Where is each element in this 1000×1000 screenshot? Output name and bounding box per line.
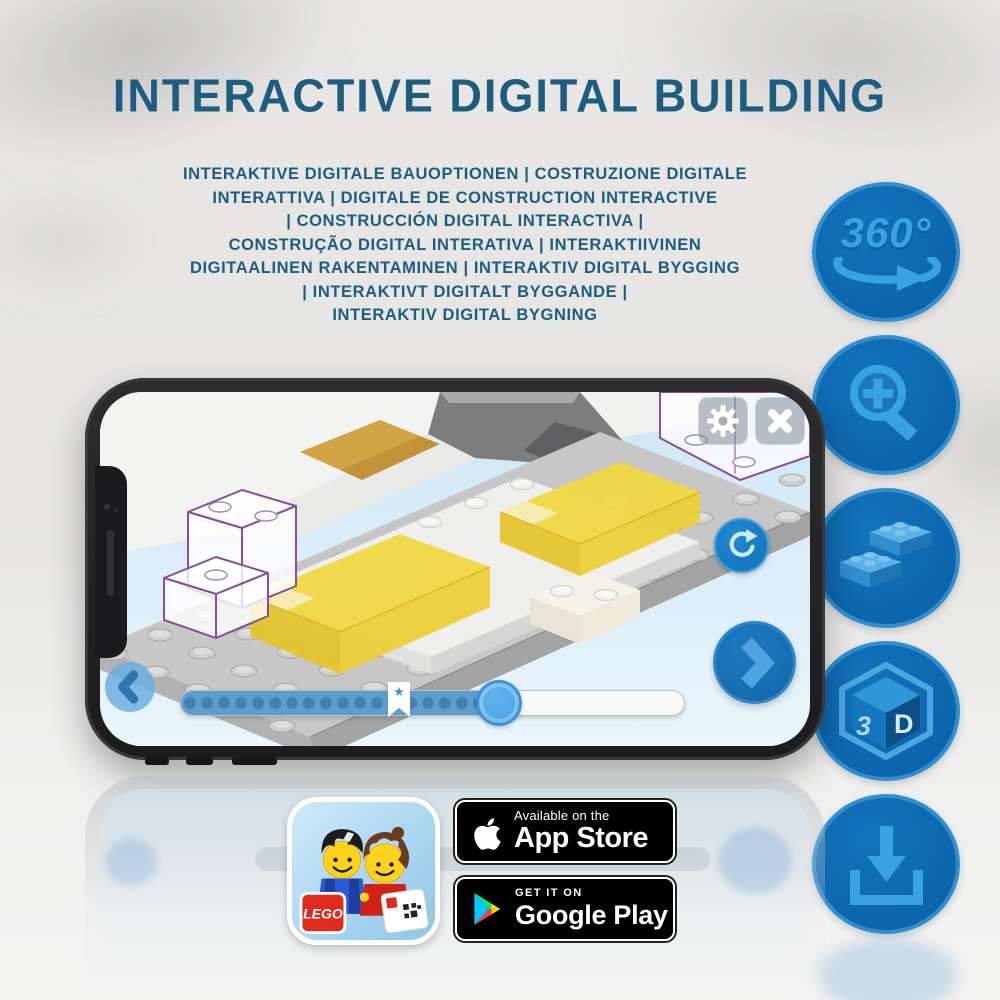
poster: INTERACTIVE DIGITAL BUILDING INTERAKTIVE…	[0, 0, 1000, 1000]
build-progress-slider[interactable]: ★	[180, 690, 685, 716]
phone: ★	[85, 378, 825, 760]
rotate-360-icon	[827, 257, 945, 291]
subtitle-line: | INTERAKTIVT DIGITALT BYGGANDE |	[30, 281, 900, 305]
download-icon	[838, 818, 934, 910]
multilingual-subtitle: INTERAKTIVE DIGITALE BAUOPTIONEN | COSTR…	[30, 163, 900, 328]
progress-handle[interactable]	[476, 680, 522, 726]
subtitle-line: DIGITAALINEN RAKENTAMINEN | INTERAKTIV D…	[30, 257, 900, 281]
back-icon	[108, 665, 152, 709]
close-button[interactable]	[755, 397, 805, 445]
settings-button[interactable]	[698, 397, 748, 445]
phone-side-button	[232, 757, 277, 765]
app-store-badge[interactable]: Available on the App Store	[455, 800, 675, 863]
google-play-line2: Google Play	[515, 900, 668, 931]
button-reflection	[105, 838, 157, 886]
camera-dot	[104, 504, 110, 510]
feature-circle-bricks	[812, 488, 960, 628]
phone-screen: ★	[100, 392, 810, 746]
zoom-in-icon	[840, 359, 932, 451]
google-play-logo	[471, 890, 505, 928]
subtitle-line: INTERAKTIVE DIGITALE BAUOPTIONEN | COSTR…	[30, 163, 900, 187]
lego-logo-text: LEGO	[303, 906, 343, 922]
cube-3d-icon	[834, 661, 938, 761]
cube-d-label: D	[894, 709, 914, 740]
feature-circle-zoom	[812, 335, 960, 475]
app-store-line2: App Store	[514, 822, 648, 855]
rotate-reset-icon	[723, 527, 761, 565]
phone-notch	[95, 466, 127, 658]
lego-minifigures-art: LEGO	[292, 802, 435, 940]
close-icon	[761, 402, 799, 440]
next-icon	[720, 628, 790, 698]
next-step-button[interactable]	[713, 621, 796, 704]
lego-bricks-icon	[834, 514, 938, 602]
apple-logo	[471, 812, 504, 851]
feature-icon-rail: 360°	[812, 182, 960, 947]
circle-reflection	[818, 938, 958, 1000]
speaker-slit	[107, 530, 114, 596]
page-title: INTERACTIVE DIGITAL BUILDING	[0, 69, 1000, 123]
subtitle-line: | CONSTRUCCIÓN DIGITAL INTERACTIVA |	[30, 210, 900, 234]
progress-fill	[181, 691, 499, 715]
apple-icon	[471, 812, 504, 851]
cube-3-label: 3	[856, 711, 871, 742]
google-play-badge[interactable]: GET IT ON Google Play	[455, 877, 675, 941]
button-reflection	[718, 828, 792, 894]
app-store-line1: Available on the	[514, 808, 648, 823]
subtitle-line: INTERAKTIV DIGITAL BYGNING	[30, 304, 900, 328]
subtitle-line: CONSTRUÇÃO DIGITAL INTERATIVA | INTERAKT…	[30, 234, 900, 258]
phone-side-button	[186, 757, 213, 765]
feature-circle-360: 360°	[812, 182, 960, 322]
phone-side-button	[145, 757, 169, 765]
gear-icon	[703, 401, 743, 441]
play-icon	[471, 890, 505, 928]
rotate-360-label: 360°	[841, 209, 932, 257]
rotate-reset-button[interactable]	[714, 518, 769, 573]
feature-circle-download	[812, 794, 960, 934]
subtitle-line: INTERATTIVA | DIGITALE DE CONSTRUCTION I…	[30, 187, 900, 211]
google-play-line1: GET IT ON	[515, 887, 668, 899]
lego-app-icon[interactable]: LEGO	[287, 797, 440, 945]
sensor-dot	[114, 508, 118, 512]
feature-circle-3d: 3 D	[812, 641, 960, 781]
previous-step-button[interactable]	[105, 662, 155, 712]
